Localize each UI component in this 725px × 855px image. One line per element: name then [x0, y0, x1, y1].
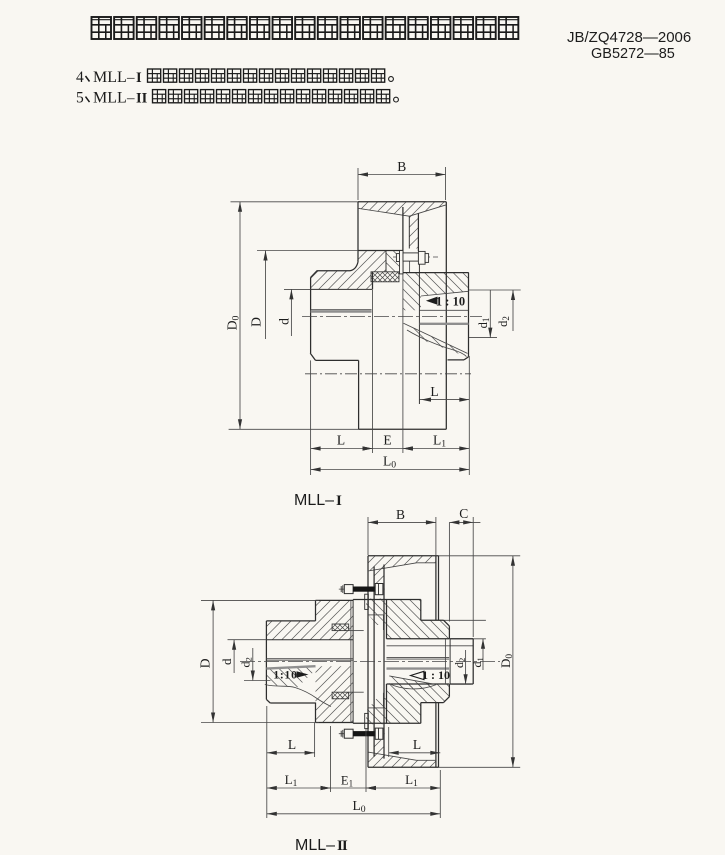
svg-text:5: 5: [76, 90, 84, 107]
svg-text:E: E: [383, 433, 391, 448]
svg-text:d: d: [219, 658, 234, 665]
svg-text:I: I: [336, 493, 342, 509]
svg-text:II: II: [136, 91, 148, 107]
svg-text:4: 4: [76, 69, 84, 86]
svg-text:B: B: [397, 159, 406, 174]
svg-text:D: D: [249, 317, 264, 327]
svg-text:L: L: [430, 384, 438, 399]
svg-text:JB/ZQ4728—2006: JB/ZQ4728—2006: [567, 29, 691, 46]
svg-text:MLL: MLL: [93, 69, 127, 86]
svg-text:I: I: [136, 70, 142, 86]
svg-text:MLL–: MLL–: [294, 492, 334, 509]
svg-text:MLL: MLL: [93, 90, 127, 107]
svg-text:L: L: [288, 737, 296, 752]
svg-text:d: d: [277, 318, 292, 325]
svg-text:II: II: [337, 838, 348, 854]
svg-text:D: D: [198, 658, 213, 668]
svg-text:1:10: 1:10: [273, 669, 297, 681]
svg-text:–: –: [126, 91, 135, 107]
svg-text:L: L: [413, 737, 421, 752]
svg-text:L: L: [337, 433, 345, 448]
svg-text:GB5272—85: GB5272—85: [591, 46, 675, 62]
svg-text:C: C: [459, 506, 468, 521]
svg-text:MLL–: MLL–: [295, 837, 335, 854]
svg-text:1 : 10: 1 : 10: [436, 294, 465, 308]
svg-text:B: B: [396, 507, 405, 522]
svg-text:1 : 10: 1 : 10: [422, 668, 450, 682]
svg-text:–: –: [126, 70, 135, 86]
